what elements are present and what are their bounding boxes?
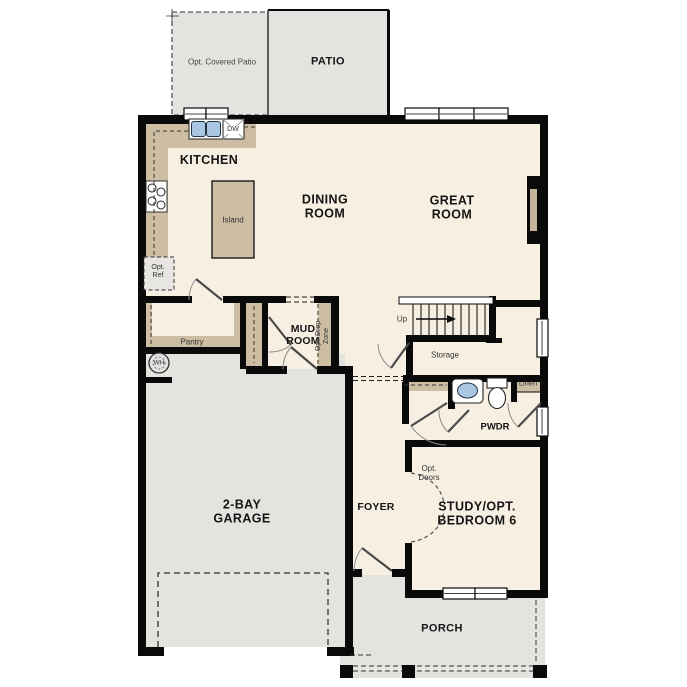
sink-basin-left <box>192 122 206 137</box>
foyer-label: FOYER <box>357 501 394 513</box>
wall-study-left-a <box>405 440 412 472</box>
study-label: STUDY/OPT. BEDROOM 6 <box>437 500 516 529</box>
wall-mud-bottom-a <box>246 366 287 374</box>
up-label: Up <box>397 314 407 323</box>
wall-mud-right <box>331 296 339 373</box>
wall-storage-top <box>406 335 490 342</box>
great-room-label: GREAT ROOM <box>430 194 475 223</box>
opt-doors-label: Opt. Doors <box>418 464 439 482</box>
wall-hall-upper <box>495 300 540 307</box>
pantry-label: Pantry <box>180 337 203 346</box>
island-label: Island <box>222 215 243 224</box>
hall-window <box>537 319 548 357</box>
wall-mud-bottom-b <box>317 366 353 374</box>
burner <box>148 184 156 192</box>
wall-mud-top-a <box>223 296 286 303</box>
wall-garage-right <box>345 366 353 656</box>
wall-wh-stub <box>146 377 172 383</box>
kitchen-counter-right <box>244 124 256 148</box>
stair-landing-edge <box>399 297 493 304</box>
burner <box>157 201 165 209</box>
pwdr-label: PWDR <box>480 423 509 434</box>
wall-left <box>138 115 146 656</box>
wall-mud-top-b <box>314 296 331 303</box>
kitchen-label: KITCHEN <box>180 153 238 167</box>
wall-garage-bottom-left <box>138 647 164 656</box>
wall-pantry-bottom <box>138 347 246 354</box>
wall-mud-left <box>262 303 268 369</box>
pantry-floor <box>152 303 234 336</box>
fireplace-insert <box>530 189 537 231</box>
wall-closet-left <box>402 382 409 424</box>
floor-plan: Opt. Covered Patio PATIO KITCHEN Island … <box>0 0 687 687</box>
toilet-tank <box>487 378 507 388</box>
dining-room-label: DINING ROOM <box>302 193 348 222</box>
porch-label: PORCH <box>421 623 463 636</box>
powder-sink <box>458 383 478 398</box>
wall-linen-left <box>511 380 517 402</box>
opt-ref-label: Opt. Ref <box>151 264 164 280</box>
wall-study-left-b <box>405 543 412 598</box>
porch-post <box>340 665 353 678</box>
wall-study-top <box>405 440 548 447</box>
burner <box>148 197 156 205</box>
porch-post <box>533 665 547 678</box>
floor-plan-drawing <box>0 0 687 687</box>
sink-basin-right <box>207 122 221 137</box>
dishwasher-label: DW <box>226 126 240 134</box>
burner <box>157 188 165 196</box>
wall-foyer-bottom-b <box>392 569 405 577</box>
wall-pantry-top <box>146 296 192 303</box>
porch-post <box>402 665 415 678</box>
linen-label: Linen <box>519 380 537 389</box>
storage-label: Storage <box>431 350 459 359</box>
water-heater-label: WH <box>154 359 165 366</box>
wall-foyer-bottom-a <box>345 569 362 577</box>
toilet-bowl <box>489 388 506 409</box>
opt-drop-zone-label: Opt. Drop Zone <box>315 321 331 351</box>
powder-window <box>537 407 548 436</box>
opt-covered-patio-label: Opt. Covered Patio <box>188 57 256 66</box>
garage-label: 2-BAY GARAGE <box>213 498 270 527</box>
patio-label: PATIO <box>311 56 345 69</box>
wall-pantry-right <box>240 303 246 369</box>
